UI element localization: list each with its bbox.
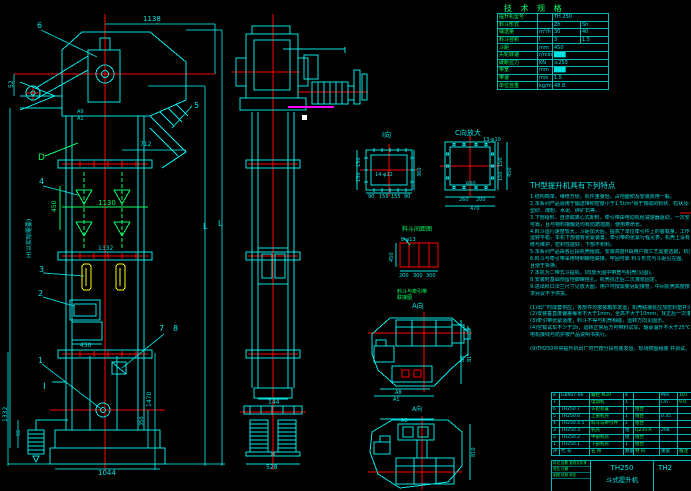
label-c-holes: 13-φ10 — [483, 137, 501, 143]
drawing-model: TH250 — [591, 464, 653, 472]
title-block-revision-grid: 标记 处数 更改文件号 签名 日期 制图 校核 审定 — [552, 461, 591, 491]
bom-cell: 组合 — [634, 421, 660, 428]
bom-row: 8GB907-86螺栓 M204Mm10T — [552, 393, 691, 400]
technical-notes: TH型提升机具有下列特点 1.结构简单，维修方便，机件重量轻，占地面积及安装费用… — [530, 180, 690, 353]
spec-cell: mm — [538, 67, 553, 75]
bom-cell: 7 — [552, 400, 560, 407]
dim-c-200: 200 — [476, 197, 486, 203]
dim-c-660: 660 — [466, 181, 476, 187]
drawing-title: 斗式提升机 — [591, 474, 653, 484]
bom-row: 7电动机1Lm9.0 — [552, 400, 691, 407]
bom-cell: 材 料 — [634, 449, 660, 456]
bom-cell: 下部机壳 — [590, 442, 624, 449]
bom-cell — [678, 442, 691, 449]
bom-cell: 10T — [678, 393, 691, 400]
note-line: (9)TH250中央提升机出厂时已按分段包装发运，现场按图组装 并调试。 — [530, 346, 690, 353]
note-line: (3)牵引带张紧适度，料斗不得与机壳相碰，运转方向见图示。 — [530, 318, 690, 325]
balloon-2: 2 — [38, 289, 43, 298]
spec-cell: TH 250 — [553, 14, 609, 22]
note-line: 6.料斗与牵引带采用特制螺栓联接，牢固可靠 料斗形式与斗距见左图。 — [530, 256, 690, 263]
note-line: 型砂、煤粉、水泥、碎矿石等。 — [530, 208, 690, 215]
bom-cell: 4 — [624, 393, 634, 400]
notes-title: TH型提升机具有下列特点 — [530, 180, 690, 191]
bom-cell — [634, 400, 660, 407]
title-block-row3: 制图 校核 审定 — [552, 473, 590, 479]
white-marker-dot — [302, 115, 307, 120]
bom-cell: 3 — [552, 428, 560, 435]
spec-cell: m³/h — [538, 29, 553, 37]
bom-cell — [678, 407, 691, 414]
bom-row: 2TH250.2中部机壳组组合 — [552, 435, 691, 442]
note-line: (4)空载试车不少于2h，运转正常后方可带料试车，轴承温升不大于25℃，ACI.… — [530, 325, 690, 332]
spec-cell: ███ — [553, 67, 609, 75]
spec-cell: mm — [538, 44, 553, 52]
bom-cell: 4 — [552, 421, 560, 428]
dim-712: 712 — [140, 141, 152, 148]
label-section-i: I — [43, 382, 46, 392]
bom-cell — [634, 393, 660, 400]
label-attach-2: 联接图 — [397, 294, 412, 301]
bom-cell: 1 — [624, 421, 634, 428]
balloon-6: 6 — [37, 21, 42, 30]
bom-cell: 数量 — [624, 449, 634, 456]
front-elevation-view — [8, 14, 225, 470]
dim-c-450: 450 — [507, 167, 513, 177]
spec-row: 料斗容积l31.5 — [498, 36, 609, 44]
label-view-a1: A向 — [412, 301, 424, 310]
bom-cell: TH250.1 — [560, 442, 590, 449]
bom-row: 4TH250.4.5料斗与牵引件1组合 — [552, 421, 691, 428]
dim-tvb-810: 810 — [471, 447, 477, 457]
label-view-c: C向放大 — [455, 128, 481, 137]
dim-450-buckets: 450 — [51, 200, 58, 212]
dim-1130: 1130 — [98, 199, 116, 207]
spec-cell: 带速 — [498, 74, 538, 82]
note-line: (2)安装垂直度偏差每米不大于1mm，全高不大于10mm，找正后一次灌浆。 — [530, 311, 690, 318]
bom-cell: 代 号 — [560, 449, 590, 456]
dim-tvb-a6: A6 — [401, 418, 408, 424]
label-view-a2: A向 — [412, 405, 422, 413]
bom-cell: 9.0 — [678, 400, 691, 407]
side-elevation-view — [232, 14, 368, 470]
spec-row: 单位自重kg/m48.8 — [498, 82, 609, 90]
bom-cell: 1 — [624, 407, 634, 414]
bom-cell: TH250.7 — [560, 407, 590, 414]
side-head — [236, 26, 367, 110]
bom-cell: 1 — [624, 400, 634, 407]
note-line: (1)出厂时成套供应，各部件均按装箱单发运，机壳联接处应加密封垫并涂密封胶。 — [530, 305, 690, 312]
spec-row: 带速m/s1.5 — [498, 74, 609, 82]
detail-view-c — [440, 136, 507, 206]
dim-350: 350 — [139, 416, 145, 426]
bom-row: 3TH250.3机壳组Q235-A208 — [552, 428, 691, 435]
dim-i-150b: 150 — [356, 172, 362, 182]
bom-cell: 组 — [624, 428, 634, 435]
dim-c-150b: 150 — [498, 171, 504, 181]
note-line: 5.本系列产品由各区段机壳组成，安装高度H由用户按工艺需要选取，机壳区段另配。 — [530, 249, 690, 256]
bom-cell: 5 — [552, 414, 560, 421]
spec-cell — [538, 21, 553, 29]
dim-c-150a: 150 — [498, 157, 504, 167]
bom-cell: TH250.2 — [560, 435, 590, 442]
bom-cell: 208 — [660, 428, 678, 435]
bom-row: 1TH250.1下部机壳1组合 — [552, 442, 691, 449]
bom-cell: Q235-A — [634, 428, 660, 435]
note-line: 修与维护，密封性能好，下部不积料。 — [530, 242, 690, 249]
dim-i-155b: 155 — [391, 194, 401, 200]
spec-row: 破断拉力KN≥250 — [498, 59, 609, 67]
top-view-a — [368, 312, 472, 396]
bom-cell: 组 — [624, 435, 634, 442]
dim-tva-81: 81 — [467, 356, 473, 362]
bom-cell: 组合 — [634, 407, 660, 414]
bom-cell: 8 — [552, 393, 560, 400]
buckets-yellow — [82, 264, 125, 290]
dim-i-90b: 90 — [404, 194, 410, 200]
bom-cell: 组合 — [634, 414, 660, 421]
spec-cell: 1.5 — [581, 36, 609, 44]
bom-cell: 名 称 — [590, 449, 624, 456]
bom-row: 5TH250.6上部机壳1组合0.35 — [552, 414, 691, 421]
bom-cell: 1 — [624, 414, 634, 421]
dim-1138: 1138 — [143, 15, 161, 23]
note-line: 且便于拆换。 — [530, 263, 690, 270]
spec-row: 带宽mm███ — [498, 67, 609, 75]
spec-row: 斗距mm450 — [498, 44, 609, 52]
spec-cell: 450 — [553, 44, 609, 52]
dim-1044: 1044 — [98, 469, 116, 477]
spec-cell: 30 — [553, 29, 581, 37]
mid-section-green-detail — [45, 143, 148, 250]
bom-table: 8GB907-86螺栓 M204Mm10T7电动机1Lm9.06TH250.7头… — [551, 392, 691, 456]
bom-cell — [660, 435, 678, 442]
bom-cell: GB907-86 — [560, 393, 590, 400]
bom-cell — [678, 414, 691, 421]
dim-52: 52 — [8, 80, 15, 88]
dim-bs-200: 200 — [399, 273, 409, 279]
bom-cell: 螺栓 M20 — [590, 393, 624, 400]
spec-cell: l — [538, 36, 553, 44]
bom-cell — [560, 400, 590, 407]
spec-cell: 48.8 — [553, 82, 609, 90]
spec-cell: Sh — [581, 21, 609, 29]
label-attach-1: 料斗与牵引带 — [397, 288, 427, 295]
title-block: 标记 处数 更改文件号 签名 日期 制图 校核 审定 TH250 斗式提升机 T… — [551, 460, 691, 491]
note-line: 8.安装时基础预留地脚螺栓孔，机壳找正后二次灌浆固定。 — [530, 277, 690, 284]
note-line: 4.料斗运行速度较大，斗距加大后，提高了单位牵引件上的装载量，工作时物料的翻落减… — [530, 229, 690, 236]
spec-cell: 1.5 — [553, 74, 609, 82]
bom-cell: 中部机壳 — [590, 435, 624, 442]
dim-tva-a8: A8 — [395, 390, 402, 396]
spec-cell: m/s — [538, 74, 553, 82]
bom-cell — [678, 428, 691, 435]
dim-i-90a: 90 — [368, 194, 374, 200]
note-line: 求另议不予供货。 — [530, 291, 690, 298]
dim-tva-a1: A1 — [393, 397, 400, 403]
label-view-i: I向 — [382, 130, 391, 139]
balloon-1: 1 — [38, 356, 43, 365]
spec-cell: 单位自重 — [498, 82, 538, 90]
spec-row: 头轮转速r/min███ — [498, 51, 609, 59]
note-line: 可靠，且与物料接触处均有防磨措施，使用寿命长。 — [530, 222, 690, 229]
bom-row: 序代 号名 称数量材 料重量备注 — [552, 449, 691, 456]
bom-cell: 头轮装置 — [590, 407, 624, 414]
note-line: 7.本机为二带式斗提机，I向放大图中带宽与机壳(见图)。 — [530, 270, 690, 277]
bom-cell: 1 — [624, 442, 634, 449]
spec-cell: 斗距 — [498, 44, 538, 52]
spec-row: 料斗形式ZhSh — [498, 21, 609, 29]
balloon-3: 3 — [39, 265, 44, 274]
dim-144: 144 — [268, 399, 280, 406]
spec-cell: 料斗形式 — [498, 21, 538, 29]
spec-cell: 破断拉力 — [498, 59, 538, 67]
spec-cell: ≥250 — [553, 59, 609, 67]
bom-cell: 1 — [552, 442, 560, 449]
spec-cell: 40 — [581, 29, 609, 37]
dim-i-150a: 150 — [356, 157, 362, 167]
bom-cell: Mm — [660, 393, 678, 400]
spec-cell: 输送量 — [498, 29, 538, 37]
dim-i-155a: 155 — [379, 194, 389, 200]
dim-bs-450: 450 — [389, 252, 395, 262]
spec-cell: 带宽 — [498, 67, 538, 75]
title-block-drawing-name: TH250 斗式提升机 — [591, 461, 654, 491]
title-block-partial-cell: TH2 — [654, 461, 691, 491]
bom-cell: TH250.6 — [560, 414, 590, 421]
bom-cell: TH250.3 — [560, 428, 590, 435]
note-line — [530, 339, 690, 346]
spec-cell: kg/m — [538, 82, 553, 90]
dim-1332-left: 1332 — [2, 407, 9, 422]
bom-cell: TH250.4.5 — [560, 421, 590, 428]
note-line — [530, 298, 690, 305]
dim-bs-300a: 300 — [413, 273, 423, 279]
dim-55: 55 — [16, 430, 22, 436]
bom-cell: 6 — [552, 407, 560, 414]
dim-c-470: 470 — [470, 206, 480, 212]
bom-cell: 序 — [552, 449, 560, 456]
note-line: 9.进出料口法兰尺寸见放大图，用户可按需要另配接管，中间机壳高度按标准节组合，特… — [530, 284, 690, 291]
note-line: 电机接线与防护按产品说明书执行。 — [530, 332, 690, 339]
label-i-holes: 14-φ12 — [375, 172, 393, 178]
spec-cell: 提升机型号 — [498, 14, 538, 22]
dim-1332-mid: 1332 — [98, 245, 113, 252]
bom-cell: 重量 — [660, 449, 678, 456]
bom-cell — [678, 435, 691, 442]
bom-cell: 组合 — [634, 435, 660, 442]
spec-row: 提升机型号TH 250 — [498, 14, 609, 22]
spec-cell — [538, 14, 553, 22]
note-line: 1.结构简单，维修方便，机件重量轻，占地面积及安装费用一般。 — [530, 194, 690, 201]
bom-cell — [660, 421, 678, 428]
spec-cell: ███ — [553, 51, 609, 59]
dim-1470: 1470 — [146, 392, 153, 407]
head-section — [20, 32, 188, 168]
bom-row: 6TH250.7头轮装置1组合 — [552, 407, 691, 414]
bom-cell: 2 — [552, 435, 560, 442]
bom-cell — [660, 407, 678, 414]
spec-cell: Zh — [553, 21, 581, 29]
bom-cell: 0.35 — [660, 414, 678, 421]
spec-cell: 头轮转速 — [498, 51, 538, 59]
label-l1: L — [203, 222, 208, 231]
balloon-5: 5 — [194, 101, 199, 110]
note-line: 运转平稳。本机下部装有张紧装置，牵引带的张紧行程见表，机壳上设有检视门，便于检 — [530, 235, 690, 242]
cad-drawing-canvas: 6113852A9A15D71244501130133232450781I147… — [0, 0, 691, 491]
label-l2: L — [218, 219, 223, 228]
dim-bs-300b: 300 — [426, 273, 436, 279]
spec-cell: r/min — [538, 51, 553, 59]
bom-cell: 备注 — [678, 449, 691, 456]
dim-450-door: 450 — [80, 342, 92, 349]
dim-528: 528 — [266, 464, 278, 471]
bom-cell: Lm — [660, 400, 678, 407]
spec-row: 输送量m³/h3040 — [498, 29, 609, 37]
bom-cell: 上部机壳 — [590, 414, 624, 421]
spec-cell: KN — [538, 59, 553, 67]
balloon-7: 7 — [159, 324, 164, 333]
spec-cell: 料斗容积 — [498, 36, 538, 44]
bom-cell: 电动机 — [590, 400, 624, 407]
label-h: H(以实际需要) — [25, 219, 33, 258]
bom-cell: 料斗与牵引件 — [590, 421, 624, 428]
label-bucket-pitch: 料斗间距图 — [402, 225, 432, 233]
note-line: 2.本系列产品适用于输送堆积密度小于1.5t/m³易于掏取的粉状、粒状及小块状物… — [530, 201, 690, 208]
note-line: 3.下部给料，自流或离心式卸料，牵引带由电动机经减速器驱动，一次安装后不需调整，… — [530, 215, 690, 222]
label-8-holes: 8-φ13 — [401, 237, 416, 243]
dim-c-260: 260 — [459, 197, 469, 203]
bom-cell — [678, 421, 691, 428]
bom-cell: 机壳 — [590, 428, 624, 435]
dim-a1: A1 — [77, 116, 84, 122]
dim-i-360: 360 — [417, 167, 423, 177]
balloon-8: 8 — [173, 324, 178, 333]
label-d: D — [38, 153, 45, 163]
top-view-b — [368, 416, 470, 490]
spec-cell: 3 — [553, 36, 581, 44]
dim-tva-86: 86 — [460, 356, 466, 362]
balloon-4: 4 — [39, 177, 44, 186]
detail-view-i — [357, 144, 418, 196]
dim-a9: A9 — [77, 109, 84, 115]
spec-table: 提升机型号TH 250料斗形式ZhSh输送量m³/h3040料斗容积l31.5斗… — [497, 13, 608, 90]
bom-cell — [660, 442, 678, 449]
bom-cell: 组合 — [634, 442, 660, 449]
